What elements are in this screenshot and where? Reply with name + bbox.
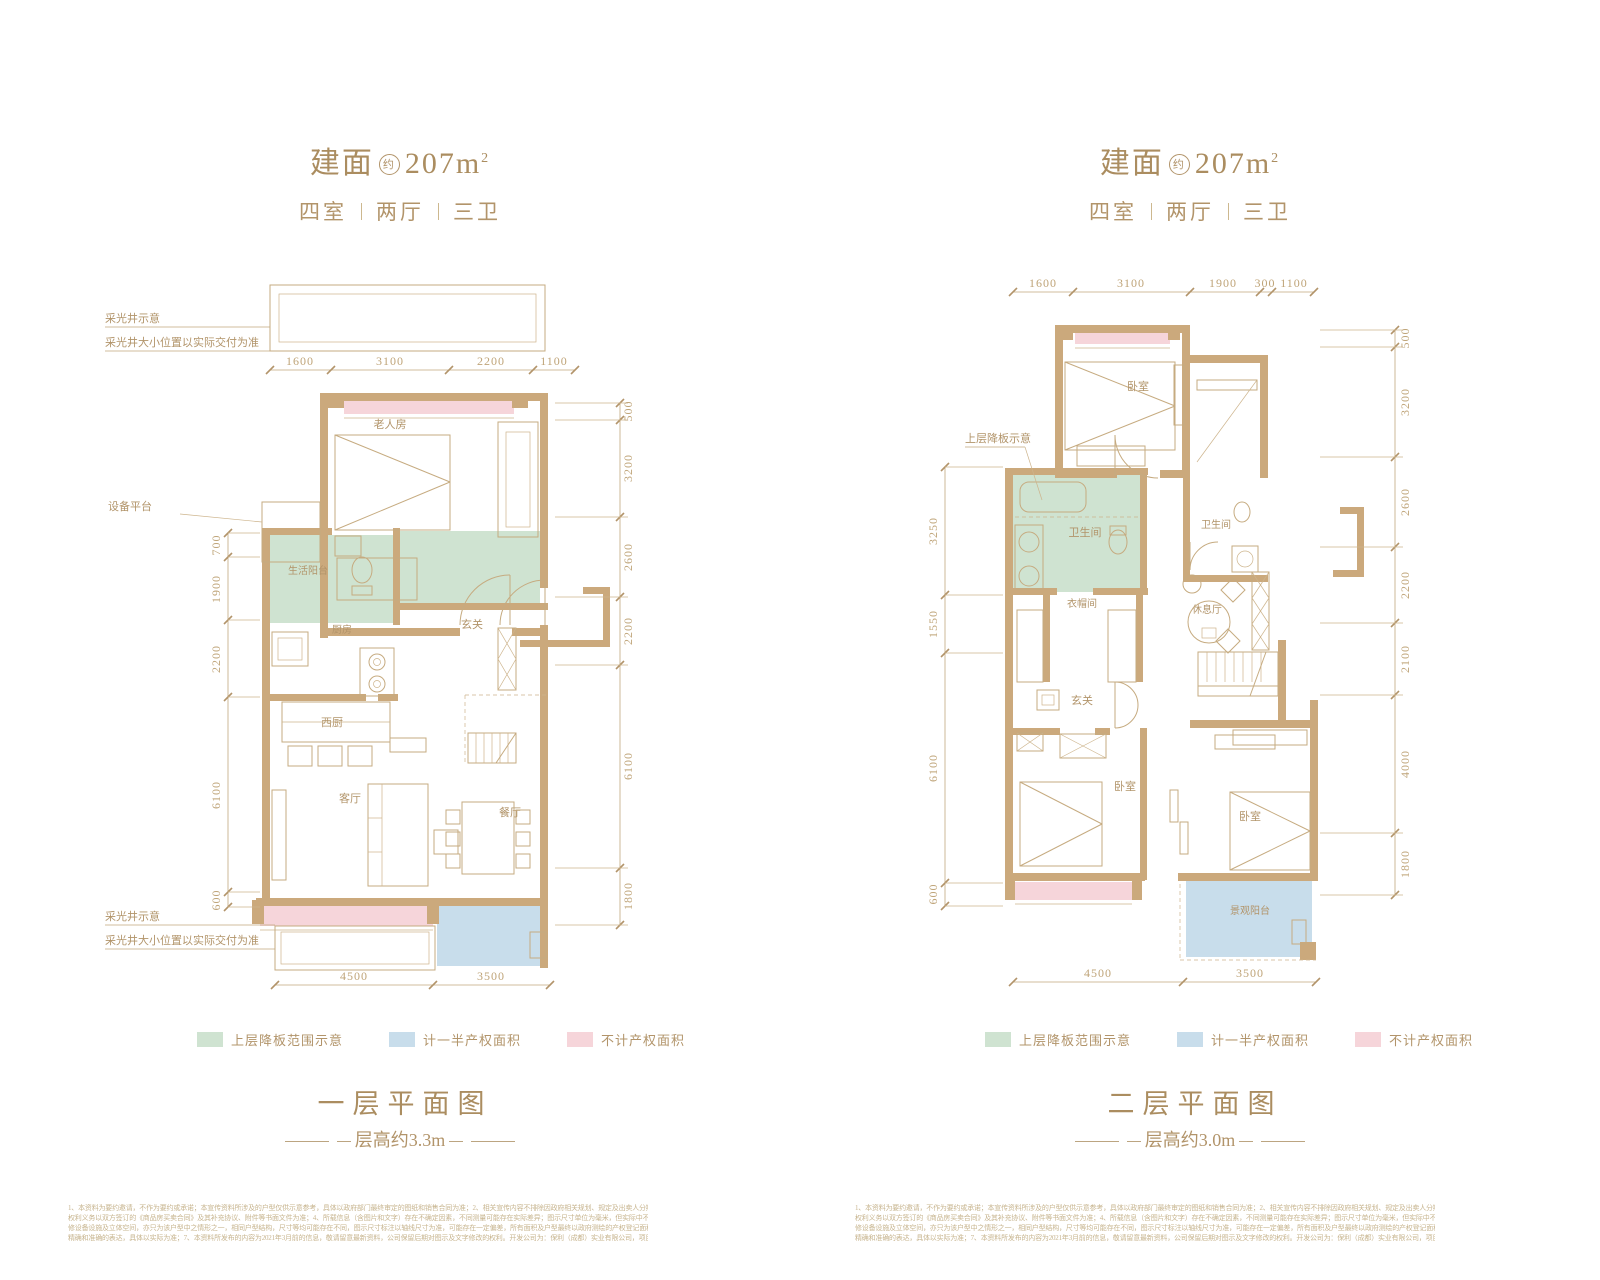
label-equipment: 设备平台 — [108, 499, 152, 513]
legend-item: 不计产权面积 — [567, 1030, 685, 1049]
disclaimer-left: 1、本资料为要约邀请，不作为要约或承诺；本宣传资料所涉及的户型仅供示意参考，具体… — [68, 1203, 648, 1243]
label-elder-room: 老人房 — [374, 418, 407, 431]
dining-room: 餐厅 — [446, 802, 530, 874]
living-room: 客厅 — [272, 738, 458, 886]
divider — [361, 203, 362, 220]
label-dining: 餐厅 — [499, 805, 521, 819]
legend-level1: 上层降板范围示意 计一半产权面积 不计产权面积 — [197, 1030, 685, 1049]
plan1-area-line: 建面约207m2 — [250, 138, 550, 182]
divider — [438, 203, 439, 220]
floorplan-page: 建面约207m2 四室两厅三卫 建面约207m2 四室两厅三卫 采光井示意 — [0, 0, 1600, 1280]
label-bedroom-left: 卧室 — [1114, 779, 1136, 793]
west-kitchen: 西厨 — [282, 702, 390, 766]
svg-text:6100: 6100 — [926, 754, 940, 782]
svg-text:1600: 1600 — [1029, 276, 1057, 290]
svg-text:1900: 1900 — [209, 575, 223, 603]
dims-right: 500 3200 2600 2200 2100 4000 1800 — [1320, 326, 1412, 899]
legend-item: 计一半产权面积 — [389, 1030, 521, 1049]
svg-text:500: 500 — [1398, 328, 1412, 349]
svg-text:3200: 3200 — [1398, 388, 1412, 416]
lounge: 休息厅 — [1183, 572, 1269, 653]
approx-circle-icon: 约 — [1169, 154, 1190, 175]
dims-top: 1600 3100 2200 1100 — [266, 354, 579, 374]
rule — [1239, 1141, 1253, 1142]
svg-text:3100: 3100 — [376, 354, 404, 368]
dims-left: 3250 1550 6100 600 — [926, 463, 1003, 910]
blue-swatch — [1177, 1032, 1203, 1047]
dims-top: 1600 3100 1900 300 1100 — [1009, 276, 1318, 296]
floorplan-level1: 采光井示意 采光井大小位置以实际交付为准 1600 3100 2200 1100 — [60, 270, 660, 1010]
label-bedroom-top: 卧室 — [1127, 379, 1149, 393]
label-foyer: 玄关 — [461, 617, 483, 631]
rule — [1127, 1141, 1141, 1142]
svg-text:4000: 4000 — [1398, 750, 1412, 778]
plan1-caption: 一层平面图 — [255, 1082, 555, 1121]
green-swatch — [985, 1032, 1011, 1047]
svg-text:300: 300 — [1255, 276, 1276, 290]
svg-text:1900: 1900 — [1209, 276, 1237, 290]
lightwell-top: 采光井示意 采光井大小位置以实际交付为准 — [105, 285, 545, 351]
bedroom-top: 卧室 — [1065, 348, 1257, 478]
dims-left: 700 1900 2200 6100 600 — [209, 529, 260, 911]
svg-text:2600: 2600 — [1398, 488, 1412, 516]
svg-text:3500: 3500 — [1236, 966, 1264, 980]
svg-text:6100: 6100 — [621, 752, 635, 780]
pink-swatch — [1355, 1032, 1381, 1047]
label-bedroom-right: 卧室 — [1239, 809, 1261, 823]
rule — [337, 1141, 351, 1142]
label-foyer2: 玄关 — [1071, 693, 1093, 707]
plan1-layout-line: 四室两厅三卫 — [250, 196, 550, 226]
svg-text:600: 600 — [209, 890, 223, 911]
floorplan-level2: 1600 3100 1900 300 1100 — [920, 270, 1440, 1010]
plan1-title: 建面约207m2 四室两厅三卫 — [250, 138, 550, 226]
legend-item: 不计产权面积 — [1355, 1030, 1473, 1049]
plan2-layout-line: 四室两厅三卫 — [1040, 196, 1340, 226]
svg-text:2600: 2600 — [621, 543, 635, 571]
zones — [260, 398, 548, 966]
label-kitchen: 厨房 — [332, 623, 352, 636]
legend-item: 上层降板范围示意 — [985, 1030, 1131, 1049]
svg-text:3200: 3200 — [621, 454, 635, 482]
stairs — [1198, 652, 1307, 745]
svg-text:3500: 3500 — [477, 969, 505, 983]
svg-text:3250: 3250 — [926, 517, 940, 545]
svg-text:1800: 1800 — [621, 882, 635, 910]
cloakroom: 衣帽间 — [1017, 597, 1136, 682]
svg-text:4500: 4500 — [340, 969, 368, 983]
plan2-height-note: 层高约3.0m — [1040, 1126, 1340, 1152]
bath-second: 卫生间 — [1190, 502, 1258, 572]
svg-text:2100: 2100 — [1398, 645, 1412, 673]
label-west-kitchen: 西厨 — [321, 716, 343, 729]
rule — [1075, 1141, 1119, 1142]
foyer2: 玄关 — [1017, 682, 1138, 751]
dims-bottom: 4500 3500 — [1009, 966, 1320, 986]
lightwell-bottom-title: 采光井示意 — [105, 909, 160, 923]
stairs — [465, 695, 548, 765]
walls — [252, 393, 610, 968]
divider — [1151, 203, 1152, 220]
label-cloakroom: 衣帽间 — [1067, 597, 1097, 610]
svg-text:1600: 1600 — [286, 354, 314, 368]
rule — [449, 1141, 463, 1142]
svg-text:3100: 3100 — [1117, 276, 1145, 290]
svg-text:1100: 1100 — [1280, 276, 1308, 290]
svg-text:1800: 1800 — [1398, 850, 1412, 878]
svg-text:2200: 2200 — [477, 354, 505, 368]
lightwell-top-title: 采光井示意 — [105, 311, 160, 325]
lightwell-top-note: 采光井大小位置以实际交付为准 — [105, 335, 259, 349]
svg-text:2200: 2200 — [621, 617, 635, 645]
svg-text:4500: 4500 — [1084, 966, 1112, 980]
svg-text:2200: 2200 — [1398, 571, 1412, 599]
label-drop-note: 上层降板示意 — [965, 431, 1031, 445]
rule — [471, 1141, 515, 1142]
label-view-balcony: 景观阳台 — [1230, 904, 1270, 917]
svg-text:600: 600 — [926, 884, 940, 905]
blue-swatch — [389, 1032, 415, 1047]
dims-bottom: 4500 3500 — [271, 969, 554, 989]
rule — [285, 1141, 329, 1142]
plan2-area-line: 建面约207m2 — [1040, 138, 1340, 182]
svg-text:1100: 1100 — [540, 354, 568, 368]
disclaimer-right: 1、本资料为要约邀请，不作为要约或承诺；本宣传资料所涉及的户型仅供示意参考，具体… — [855, 1203, 1435, 1243]
plan2-title: 建面约207m2 四室两厅三卫 — [1040, 138, 1340, 226]
green-swatch — [197, 1032, 223, 1047]
label-service-balcony: 生活阳台 — [288, 564, 328, 577]
legend-item: 上层降板范围示意 — [197, 1030, 343, 1049]
legend-item: 计一半产权面积 — [1177, 1030, 1309, 1049]
plan1-height-note: 层高约3.3m — [250, 1126, 550, 1152]
divider — [1228, 203, 1229, 220]
svg-text:700: 700 — [209, 535, 223, 556]
bedroom-right: 卧室 — [1215, 735, 1310, 870]
lightwell-bottom-note: 采光井大小位置以实际交付为准 — [105, 933, 259, 947]
svg-text:500: 500 — [621, 401, 635, 422]
svg-text:2200: 2200 — [209, 645, 223, 673]
svg-text:1550: 1550 — [926, 610, 940, 638]
label-living: 客厅 — [339, 791, 361, 805]
dims-right: 500 3200 2600 2200 6100 1800 — [555, 399, 635, 929]
label-bath-second: 卫生间 — [1201, 518, 1231, 531]
rule — [1261, 1141, 1305, 1142]
plan2-caption: 二层平面图 — [1045, 1082, 1345, 1121]
svg-text:6100: 6100 — [209, 781, 223, 809]
label-bath-main: 卫生间 — [1069, 525, 1102, 539]
approx-circle-icon: 约 — [379, 154, 400, 175]
bedroom-left: 卧室 — [1020, 734, 1188, 866]
pink-swatch — [567, 1032, 593, 1047]
legend-level2: 上层降板范围示意 计一半产权面积 不计产权面积 — [985, 1030, 1473, 1049]
